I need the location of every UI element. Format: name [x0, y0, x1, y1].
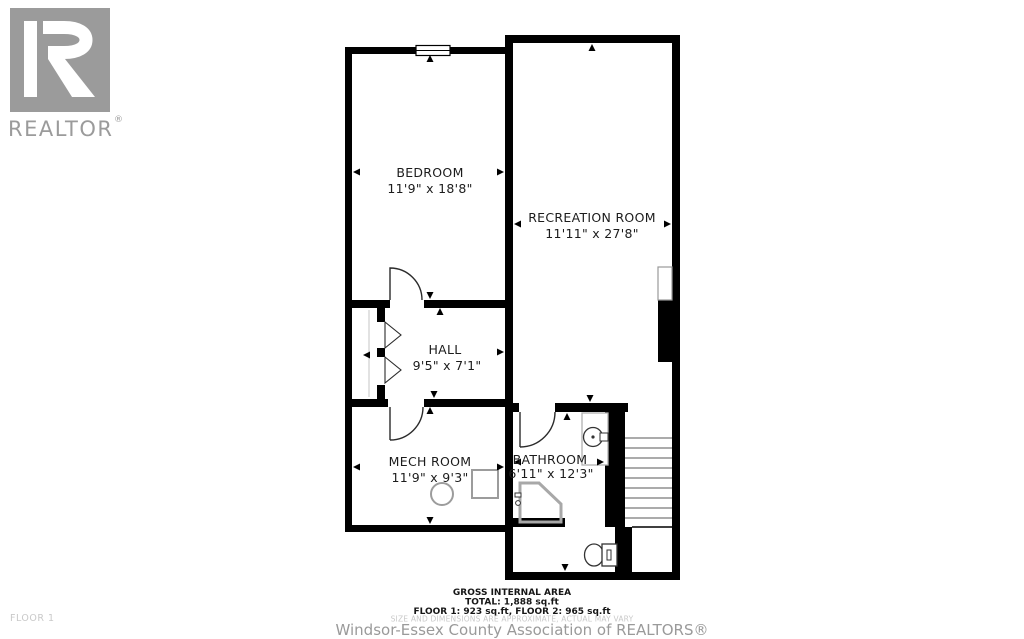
water-tank-icon: [431, 483, 453, 505]
wall-segment: [345, 399, 388, 407]
realtor-logo-text: REALTOR: [8, 117, 113, 141]
shower-valve: [515, 493, 521, 497]
association-attribution: Windsor-Essex County Association of REAL…: [336, 621, 709, 639]
stairs-icon: [625, 438, 672, 527]
wall-segment: [424, 300, 512, 308]
door-swing-icon: [520, 412, 555, 447]
recreation-room-label: RECREATION ROOM: [528, 210, 656, 225]
hall-label: HALL: [428, 342, 461, 357]
dimension-arrow: [497, 169, 504, 176]
wall-segment: [377, 385, 385, 399]
wall-segment: [672, 35, 680, 580]
gross-internal-area-title: GROSS INTERNAL AREA: [453, 588, 571, 598]
fireplace-hearth: [658, 267, 672, 300]
realtor-r-stem: [24, 21, 37, 97]
wall-segment: [505, 572, 680, 580]
furnace-icon: [472, 470, 498, 498]
shower-control: [516, 501, 521, 506]
wall-segment: [377, 308, 385, 322]
dimension-arrow: [587, 395, 594, 402]
registered-mark: ®: [114, 115, 123, 125]
window-icon: [416, 46, 450, 56]
bifold-closet-door-icon: [385, 357, 401, 383]
dimension-arrow: [427, 292, 434, 299]
floor-plan-page: REALTOR ®: [0, 0, 1024, 639]
wall-segment: [424, 399, 512, 407]
wall-segment: [345, 47, 417, 54]
dimension-arrow: [564, 413, 571, 420]
bifold-closet-door-icon: [385, 322, 401, 348]
recreation-room-dimensions: 11'11" x 27'8": [545, 226, 639, 241]
dimension-arrow: [664, 221, 671, 228]
wall-segment: [345, 525, 512, 532]
dimension-arrow: [427, 407, 434, 414]
wall-segment: [345, 300, 390, 308]
bathroom-fixtures: [515, 413, 617, 566]
dimension-arrow: [562, 564, 569, 571]
wall-segment: [450, 47, 512, 54]
total-area-line: TOTAL: 1,888 sq.ft: [465, 598, 559, 608]
mech-room-label: MECH ROOM: [389, 454, 472, 469]
dimension-arrow: [497, 349, 504, 356]
dimension-arrow: [353, 169, 360, 176]
wall-segment: [377, 348, 385, 357]
shower-icon: [520, 483, 561, 522]
dimension-arrow: [497, 464, 504, 471]
dimension-arrow: [437, 308, 444, 315]
wall-segment: [658, 355, 680, 362]
door-swing-icon: [390, 407, 423, 440]
floor-number-tag: FLOOR 1: [10, 613, 55, 624]
bathroom-dimensions: 6'11" x 12'3": [508, 466, 593, 481]
bedroom-dimensions: 11'9" x 18'8": [387, 181, 472, 196]
realtor-logo: REALTOR ®: [8, 8, 123, 141]
dimension-arrow: [427, 517, 434, 524]
bathroom-label: BATHROOM: [513, 452, 588, 467]
sink-faucet: [600, 433, 608, 441]
dimension-arrow: [363, 352, 370, 359]
wall-segment: [345, 47, 352, 532]
mech-room-dimensions: 11'9" x 9'3": [391, 470, 468, 485]
dimension-arrow: [589, 44, 596, 51]
toilet-icon: [585, 544, 604, 566]
hall-dimensions: 9'5" x 7'1": [413, 358, 482, 373]
wall-segment: [513, 403, 519, 412]
toilet-flush: [607, 550, 611, 560]
dimension-arrow: [514, 221, 521, 228]
sink-drain: [591, 435, 594, 438]
dimension-arrow: [431, 391, 438, 398]
bedroom-label: BEDROOM: [396, 165, 463, 180]
footer: GROSS INTERNAL AREA TOTAL: 1,888 sq.ft F…: [10, 588, 709, 639]
wall-segment: [505, 35, 680, 43]
fireplace-icon: [658, 300, 672, 362]
floor-plan-svg: REALTOR ®: [0, 0, 1024, 639]
door-swing-icon: [390, 268, 422, 300]
dimension-arrow: [353, 464, 360, 471]
